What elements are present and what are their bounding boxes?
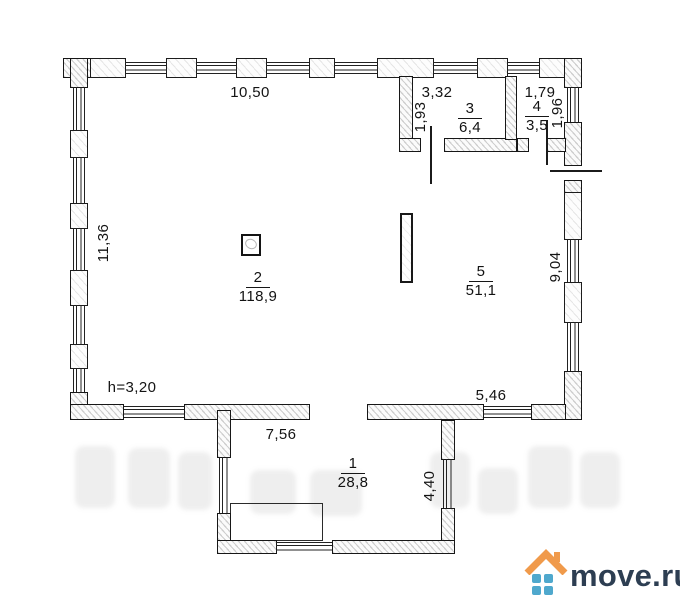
room-number: 2 [246,270,271,288]
wall-pier [90,58,126,78]
room-label-1: 1 28,8 [308,455,398,491]
wall-pier [564,282,582,323]
room-label-5: 5 51,1 [436,263,526,299]
room-label-2: 2 118,9 [213,269,303,305]
window [433,62,478,74]
window [73,368,85,394]
wall-pier [309,58,335,78]
watermark-blob [178,452,212,510]
dim-bottom-right: 5,46 [451,387,531,405]
room-number: 4 [525,99,550,117]
wall-segment [564,371,582,420]
wall-segment [367,404,484,420]
window [567,322,579,372]
room-area: 3,5 [492,118,582,135]
dim-left-wall: 11,36 [95,203,113,283]
watermark-blob [75,446,115,508]
window [73,228,85,271]
floor-plan: 10,50 3,32 1,79 1,93 1,96 11,36 9,04 h=3… [0,0,680,600]
room-label-4: 4 3,5 [492,98,582,134]
wall-segment [217,410,231,458]
dim-top-wall: 10,50 [210,84,290,102]
watermark-blob [128,448,170,508]
logo-square [532,586,541,595]
door-opening-line [550,170,602,172]
window [73,305,85,345]
wall-segment [184,404,310,420]
window [124,406,184,418]
window [196,62,237,74]
dim-ceiling-height: h=3,20 [92,379,172,397]
wall-segment [70,58,88,88]
interior-wall-stub [400,213,413,283]
wall-pier [564,192,582,240]
watermark-blob [580,452,620,508]
wall-segment [70,404,124,420]
wall-segment [217,540,277,554]
wall-pier [236,58,267,78]
wall-pier [70,270,88,306]
room-number: 3 [458,101,483,119]
porch-outline [230,503,323,541]
wall-pier [377,58,434,78]
window [484,406,531,418]
watermark-blob [478,468,518,514]
window [266,62,310,74]
wall-pier [166,58,197,78]
wall-segment [332,540,455,554]
dim-bottom-left: 7,56 [241,426,321,444]
watermark-blob [528,446,572,508]
window [567,239,579,283]
column [241,234,261,256]
window [73,157,85,204]
window [125,62,167,74]
window [219,457,230,514]
logo-text: move.ru [570,559,680,593]
logo-square [532,574,541,583]
window [276,542,333,553]
logo-square [544,574,553,583]
wall-pier [70,344,88,369]
room-area: 51,1 [436,283,526,300]
wall-segment [531,404,566,420]
house-roof-icon [524,549,568,575]
window [507,62,540,74]
wall-pier [70,130,88,158]
dim-extension-right: 4,40 [421,446,439,526]
column-scribble [243,237,258,251]
wall-segment [444,138,517,152]
moveru-logo[interactable]: move.ru [524,549,676,599]
dim-right-wall: 9,04 [547,227,565,307]
room-area: 118,9 [213,289,303,306]
window [334,62,378,74]
wall-segment [441,420,455,460]
logo-square [544,586,553,595]
window [73,87,85,131]
wall-pier [70,203,88,229]
room-number: 5 [469,264,494,282]
wall-segment [517,138,529,152]
room-area: 28,8 [308,475,398,492]
room-number: 1 [341,456,366,474]
wall-pier [477,58,508,78]
window [443,459,454,509]
